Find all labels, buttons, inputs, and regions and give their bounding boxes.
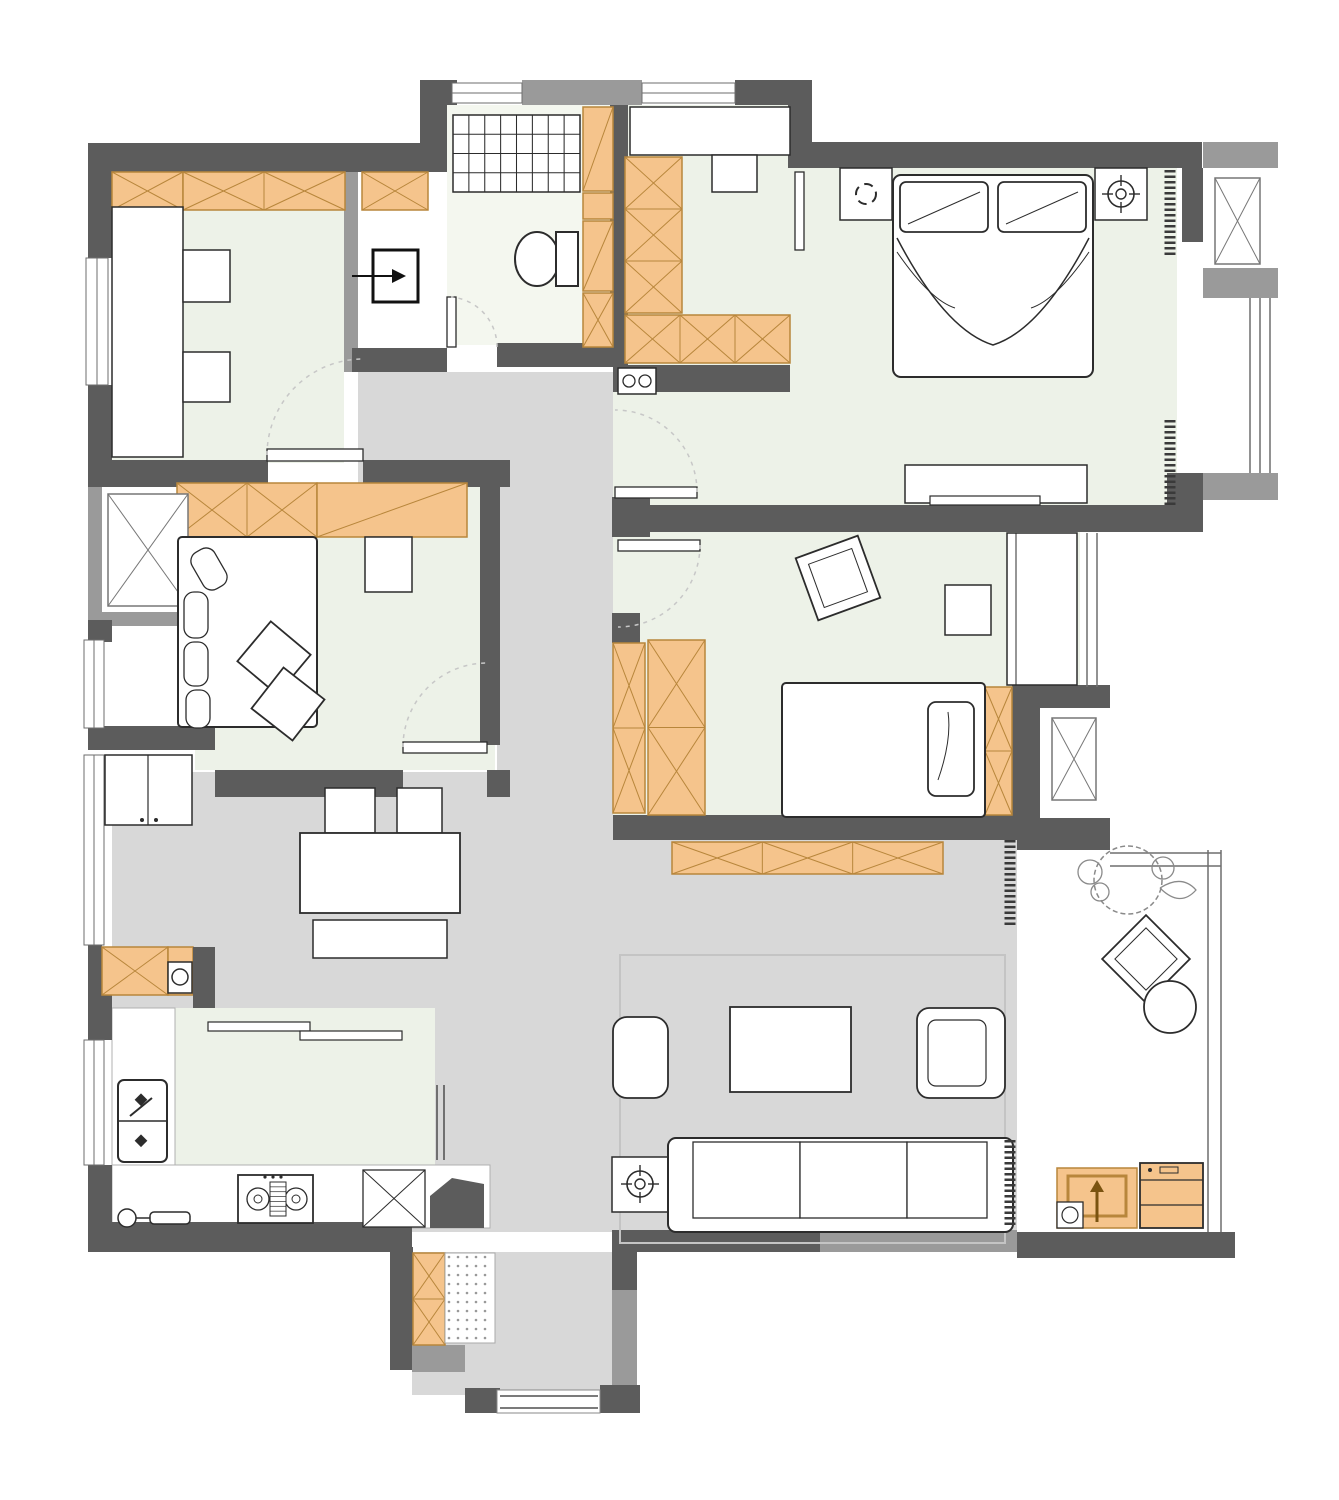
wall-bed3-bottom-stub — [487, 770, 510, 797]
wall-bath-top-mid — [522, 80, 642, 105]
study-chair-1 — [183, 250, 230, 302]
wall-master-topright-col — [1182, 168, 1203, 242]
balcony-sink-sidebox — [1057, 1202, 1083, 1228]
floor-plan-page — [0, 0, 1339, 1500]
kettle-body — [118, 1209, 136, 1227]
bay-topright-window-zone — [1203, 298, 1278, 473]
wall-bedroom2-west-stub — [612, 613, 640, 643]
shoe-cabinet — [413, 1253, 445, 1345]
bed3-desk-return — [365, 537, 412, 592]
kettle-base — [150, 1212, 190, 1224]
bed3-cushion-2 — [184, 592, 208, 638]
entry-doormat — [445, 1253, 495, 1343]
dining-chair-1 — [325, 788, 375, 833]
wardrobe-closet-horizontal — [625, 315, 790, 363]
shower-tray — [453, 115, 580, 192]
wall-balcony-top — [1017, 818, 1110, 850]
stove-knob-1 — [263, 1175, 266, 1178]
study-desk — [112, 207, 183, 457]
bed3-cushion-3 — [184, 642, 208, 686]
wall-study-vanity-divider — [344, 172, 358, 372]
stove-grill — [270, 1182, 286, 1216]
ac-niche-frame-left — [88, 480, 102, 620]
wall-closet-master-col — [788, 80, 812, 168]
armchair-seat — [928, 1020, 986, 1086]
coffee-table — [730, 1007, 851, 1092]
kitchen-corner-cabinet — [363, 1170, 425, 1227]
bedroom2-pillow — [928, 702, 974, 796]
cabinet-vanity-top — [362, 172, 428, 210]
bay-frame-bottom — [1203, 473, 1278, 500]
study-chair-2 — [183, 352, 230, 402]
wall-entry-right-c — [612, 1385, 637, 1413]
wall-doorway-stub — [612, 497, 650, 537]
washer-cabinet-dining — [102, 947, 168, 995]
wall-left-stub-washer — [88, 945, 102, 997]
stove-knob-2 — [271, 1175, 274, 1178]
wall-bedroom2-niche-top — [1040, 685, 1110, 708]
wall-balcony-bottom — [1017, 1232, 1235, 1258]
living-side-table — [613, 1017, 668, 1098]
hall-floor-mid-corridor — [497, 487, 613, 815]
door-leaf-bed3 — [403, 742, 487, 753]
wall-left-d — [88, 995, 112, 1040]
wall-study-top — [88, 143, 432, 172]
door-leaf-bathroom — [447, 297, 456, 347]
wall-bedroom2-niche-left — [1012, 685, 1040, 815]
wall-washer-stub — [193, 947, 215, 1008]
dining-table — [300, 833, 460, 913]
stove-knob-3 — [279, 1175, 282, 1178]
floor-plan — [0, 0, 1339, 1500]
closet-box — [712, 155, 757, 192]
kitchen-slide-door-leaf-1 — [208, 1022, 310, 1031]
sofa-cushion-2 — [800, 1142, 907, 1218]
wall-entry-bottom-left — [465, 1388, 500, 1413]
wall-entry-step — [412, 1345, 465, 1372]
fridge-handle-1 — [140, 818, 144, 822]
wardrobe-bedroom2-col-b — [648, 640, 705, 815]
wardrobe-study-a — [112, 172, 183, 210]
cabinet-bath-base — [583, 293, 613, 347]
master-dresser-shelf — [930, 496, 1040, 505]
bay-frame-top — [1203, 142, 1278, 168]
wall-left-a — [88, 143, 112, 258]
wall-living-bottom — [612, 1230, 820, 1252]
wall-bed3-east — [480, 487, 500, 745]
wall-bedroom2-bottom — [613, 815, 1040, 840]
door-leaf-study — [267, 449, 363, 461]
master-pillow-left — [900, 182, 988, 232]
wall-living-bottom-sill — [820, 1230, 1017, 1252]
wall-bed3-bottom-left — [88, 726, 215, 750]
wall-vanity-bottom — [352, 348, 447, 372]
balcony-stool — [1144, 981, 1196, 1033]
wall-bath-left-col — [420, 80, 447, 172]
balcony-washer-knob — [1148, 1168, 1152, 1172]
wall-entry-left — [390, 1247, 413, 1370]
wall-entry-right-a — [612, 1252, 637, 1290]
toilet-bowl — [515, 232, 559, 286]
wardrobe-bed3 — [177, 483, 317, 537]
cabinet-bath-tall-b — [583, 221, 613, 291]
entry-door-threshold — [497, 1390, 600, 1413]
wardrobe-closet-vertical — [625, 157, 682, 313]
dining-chair-2 — [397, 788, 442, 833]
cabinet-bath-tall-a — [583, 107, 613, 191]
master-pillow-right — [998, 182, 1086, 232]
closet-shelf-top — [630, 107, 790, 155]
door-leaf-bedroom2 — [618, 540, 700, 551]
door-leaf-closet-master — [795, 172, 804, 250]
bedroom2-desk-chair — [945, 585, 991, 635]
bedroom2-desk — [1007, 533, 1077, 685]
wall-entry-right-b — [612, 1290, 637, 1385]
wardrobe-bedroom2-foot — [985, 687, 1012, 815]
wall-master-top — [812, 142, 1202, 168]
wall-bath-top-b — [735, 80, 790, 105]
bed3-cushion-4 — [186, 690, 210, 728]
cabinet-bath-shelf — [583, 193, 613, 219]
door-leaf-master — [615, 487, 697, 498]
wall-left-c — [88, 620, 112, 642]
fridge-handle-2 — [154, 818, 158, 822]
bedroom2-window-sill — [1080, 533, 1107, 687]
sofa-cushion-1 — [693, 1142, 800, 1218]
kitchen-slide-door-leaf-2 — [300, 1031, 402, 1040]
desk-bed3-counter — [317, 483, 467, 537]
master-nightstand-left — [840, 168, 892, 220]
wardrobe-study-b — [183, 172, 345, 210]
tv-cabinet — [672, 842, 943, 874]
wardrobe-bedroom2-col-a — [613, 643, 645, 813]
bath-fixture-box — [618, 368, 656, 394]
dining-bench — [313, 920, 447, 958]
bay-frame-mid — [1203, 268, 1278, 298]
wall-central — [643, 505, 1182, 532]
toilet-tank — [556, 232, 578, 286]
sofa-cushion-3 — [907, 1142, 987, 1218]
